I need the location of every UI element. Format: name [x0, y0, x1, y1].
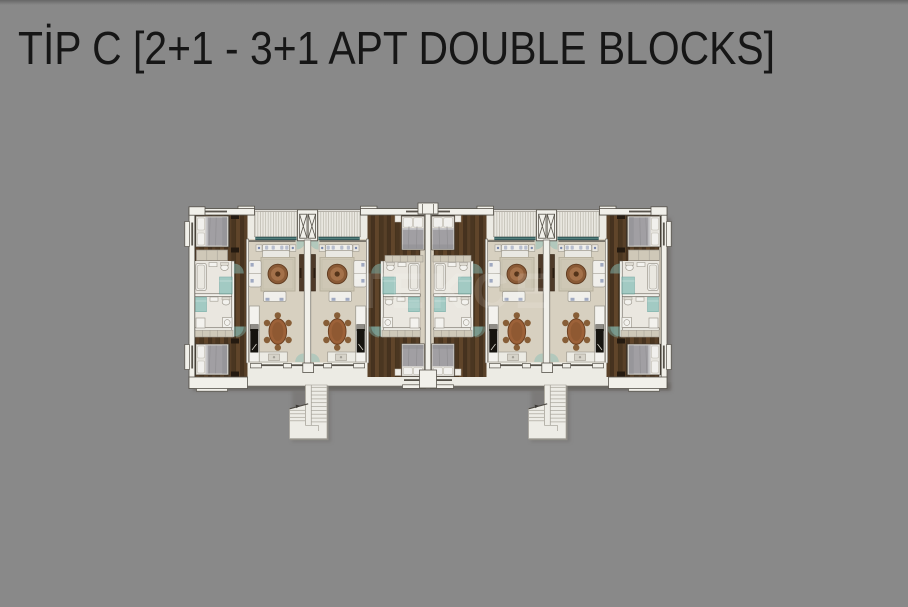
svg-text:TİP C [2+1 - 3+1 APT DOUBLE BL: TİP C [2+1 - 3+1 APT DOUBLE BLOCKS] — [18, 22, 775, 74]
svg-text:TEKCE: TEKCE — [354, 263, 554, 319]
